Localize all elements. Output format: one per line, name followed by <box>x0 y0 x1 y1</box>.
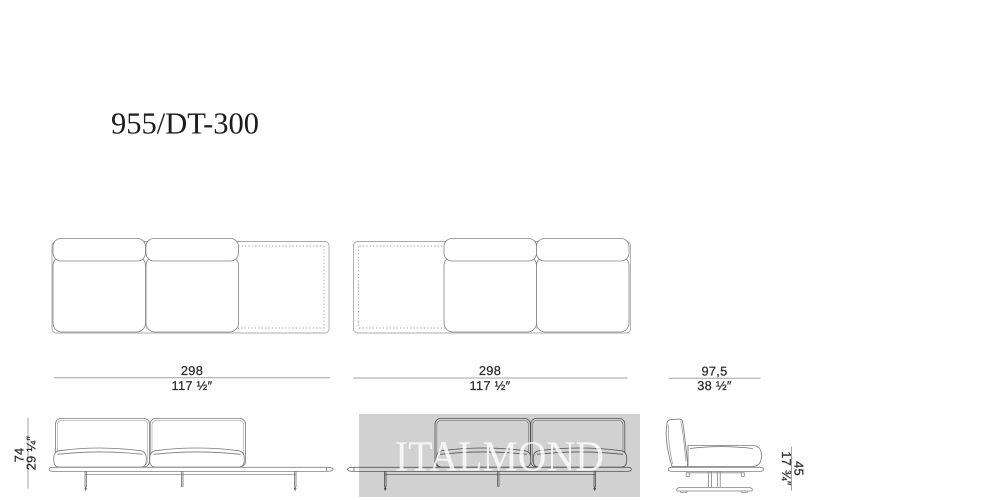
svg-text:29 ¼″: 29 ¼″ <box>24 436 39 471</box>
svg-text:117 ½″: 117 ½″ <box>470 378 511 393</box>
svg-text:117 ½″: 117 ½″ <box>172 378 213 393</box>
svg-text:ITALMOND: ITALMOND <box>395 434 604 481</box>
svg-text:298: 298 <box>181 363 203 378</box>
svg-text:17 ¾″: 17 ¾″ <box>779 451 794 486</box>
svg-text:955/DT-300: 955/DT-300 <box>111 107 259 141</box>
svg-text:97,5: 97,5 <box>701 364 727 379</box>
svg-text:38 ½″: 38 ½″ <box>697 378 732 393</box>
svg-text:298: 298 <box>479 363 501 378</box>
